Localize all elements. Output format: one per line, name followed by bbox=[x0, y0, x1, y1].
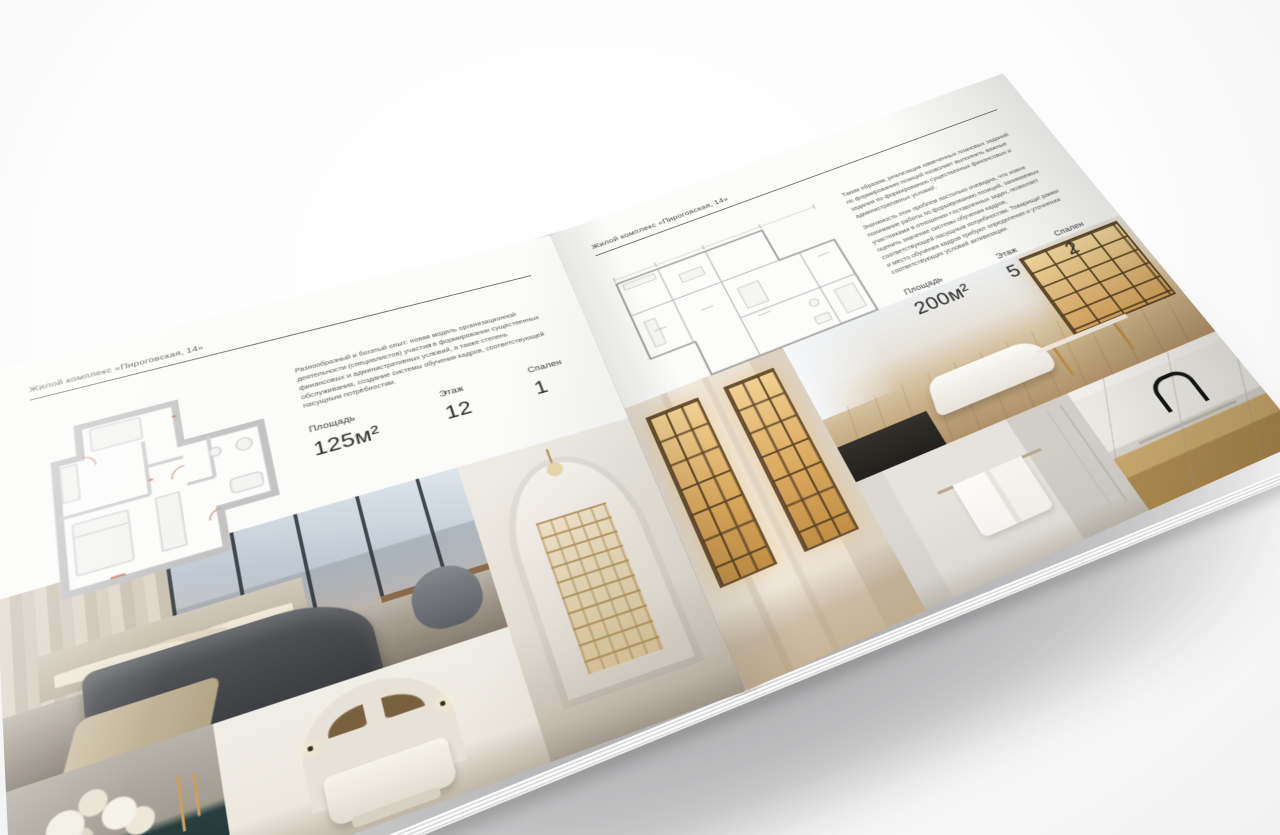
candlesticks bbox=[170, 767, 211, 834]
spec-bedrooms-value: 1 bbox=[531, 371, 573, 400]
spec-area: Площадь 125м² bbox=[308, 408, 383, 461]
scene: Жилой комплекс «Пироговская, 14» bbox=[0, 0, 1280, 835]
backdrop: Жилой комплекс «Пироговская, 14» bbox=[0, 0, 1280, 835]
spec-bedrooms: Спален 1 bbox=[526, 358, 573, 400]
spec-floor: Этаж 12 bbox=[438, 384, 475, 425]
black-faucet bbox=[1146, 367, 1207, 413]
spec-floor-label: Этаж bbox=[994, 246, 1019, 261]
towel bbox=[953, 456, 1055, 538]
spec-floor-label: Этаж bbox=[438, 384, 466, 399]
page-left-info: Разнообразный и богатый опыт: новая моде… bbox=[294, 305, 575, 462]
spec-floor-value: 12 bbox=[443, 397, 476, 424]
sink-edge bbox=[1138, 400, 1238, 445]
brochure-spread: Жилой комплекс «Пироговская, 14» bbox=[0, 101, 1280, 835]
